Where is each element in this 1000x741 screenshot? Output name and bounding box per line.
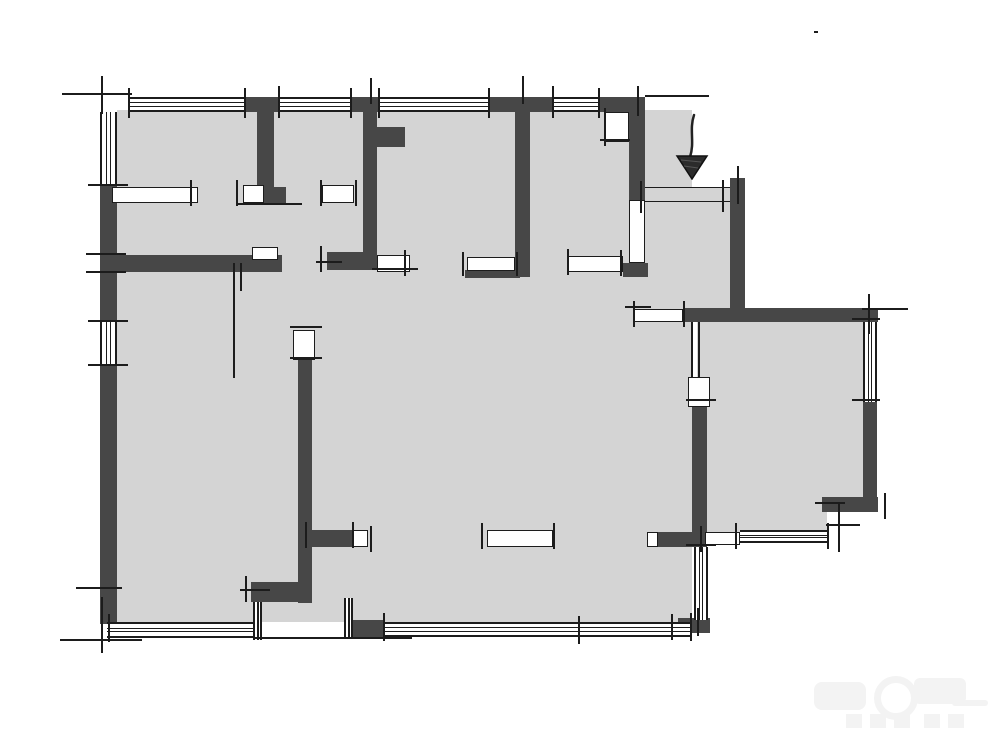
- sketch-tick-line: [827, 523, 829, 549]
- sketch-tick-line: [316, 261, 342, 263]
- wall-segment: [244, 97, 278, 112]
- sketch-tick-line: [190, 180, 192, 206]
- sketch-tick-line: [352, 522, 354, 548]
- sketch-tick-line: [240, 263, 242, 291]
- window-band: [344, 598, 353, 638]
- floor-area: [117, 110, 692, 622]
- door-opening: [322, 185, 354, 203]
- sketch-tick-line: [686, 399, 716, 401]
- entrance-arrow-icon: [668, 112, 712, 185]
- wall-segment: [629, 112, 645, 200]
- sketch-tick-line: [862, 308, 908, 310]
- sketch-tick-line: [691, 322, 693, 378]
- sketch-tick-line: [350, 88, 352, 118]
- sketch-tick-line: [852, 318, 880, 320]
- sketch-tick-line: [128, 88, 130, 118]
- sketch-tick-line: [700, 526, 702, 552]
- sketch-tick-line: [86, 271, 126, 273]
- sketch-tick-line: [671, 614, 673, 640]
- sketch-tick-line: [640, 181, 642, 213]
- door-opening: [567, 256, 623, 272]
- sketch-tick-line: [233, 263, 235, 378]
- wall-segment: [488, 97, 552, 112]
- floorplan-page: [0, 0, 1000, 741]
- entrance-threshold: [645, 187, 732, 202]
- sketch-tick-line: [481, 523, 483, 549]
- sketch-tick-line: [488, 88, 490, 118]
- wall-segment: [350, 97, 378, 112]
- watermark-blob: [846, 714, 862, 728]
- sketch-tick-line: [62, 93, 132, 95]
- window-band: [380, 97, 488, 112]
- sketch-tick-line: [88, 364, 128, 366]
- sketch-tick-line: [722, 180, 724, 212]
- sketch-tick-line: [88, 320, 128, 322]
- sketch-tick-line: [516, 252, 518, 276]
- sketch-tick-line: [553, 523, 555, 549]
- sketch-tick-line: [240, 589, 270, 591]
- sketch-tick-line: [598, 88, 600, 118]
- wall-segment: [251, 582, 312, 602]
- floorplan-canvas: [0, 0, 1000, 741]
- sketch-tick-line: [884, 493, 886, 519]
- door-opening: [633, 309, 683, 322]
- window-band: [253, 602, 262, 640]
- sketch-tick-line: [88, 184, 128, 186]
- sketch-tick-line: [737, 166, 739, 204]
- wall-segment: [100, 366, 117, 602]
- sketch-tick-line: [838, 504, 840, 552]
- sketch-tick-line: [620, 250, 622, 276]
- sketch-tick-line: [290, 357, 322, 359]
- door-opening: [487, 530, 553, 547]
- window-band: [128, 97, 244, 112]
- door-opening: [605, 112, 629, 142]
- window-band: [278, 97, 350, 112]
- sketch-tick-line: [578, 616, 580, 644]
- window-band: [552, 97, 598, 112]
- sketch-tick-line: [690, 613, 692, 641]
- sketch-tick-line: [320, 180, 322, 206]
- door-opening: [647, 532, 658, 547]
- wall-segment: [863, 400, 877, 512]
- sketch-tick-line: [278, 86, 280, 118]
- sketch-tick-line: [552, 86, 554, 118]
- floor-area: [645, 187, 732, 322]
- door-opening: [293, 330, 315, 360]
- door-opening: [353, 530, 368, 547]
- window-band: [100, 322, 117, 366]
- sketch-tick-line: [604, 108, 606, 146]
- window-band: [740, 530, 827, 543]
- window-band: [107, 622, 257, 638]
- sketch-tick-line: [290, 326, 322, 328]
- sketch-tick-line: [868, 294, 870, 334]
- sketch-tick-line: [108, 614, 110, 642]
- sketch-tick-line: [683, 301, 685, 327]
- sketch-tick-line: [370, 78, 372, 104]
- watermark-blob: [894, 714, 910, 728]
- door-opening: [467, 257, 515, 271]
- wall-segment: [312, 530, 353, 547]
- wall-segment: [353, 620, 383, 637]
- sketch-tick-line: [238, 203, 302, 205]
- door-opening: [629, 200, 645, 263]
- watermark-blob: [952, 700, 988, 706]
- window-band: [383, 622, 690, 637]
- sketch-tick-line: [852, 399, 880, 401]
- door-opening: [243, 185, 264, 203]
- sketch-tick-line: [826, 524, 860, 526]
- door-opening: [252, 247, 278, 260]
- door-opening: [688, 377, 710, 407]
- sketch-tick-line: [101, 76, 103, 114]
- sketch-tick-line: [372, 268, 418, 270]
- sketch-tick-line: [101, 597, 103, 653]
- wall-segment: [298, 360, 312, 603]
- watermark-blob: [814, 682, 866, 710]
- wall-segment: [683, 308, 878, 322]
- sketch-tick-line: [378, 88, 380, 118]
- watermark-blob: [948, 714, 964, 728]
- sketch-tick-line: [815, 502, 845, 504]
- wall-segment: [465, 270, 520, 278]
- watermark: [812, 670, 992, 734]
- sketch-tick-line: [698, 322, 700, 378]
- sketch-tick-line: [637, 86, 639, 116]
- sketch-tick-line: [567, 249, 569, 275]
- sketch-tick-line: [355, 180, 357, 206]
- sketch-tick-line: [814, 31, 818, 33]
- wall-segment: [363, 112, 377, 270]
- floor-area: [697, 430, 827, 532]
- sketch-tick-line: [244, 88, 246, 118]
- wall-segment: [822, 497, 878, 512]
- watermark-blob: [924, 714, 940, 728]
- sketch-tick-line: [686, 544, 716, 546]
- wall-segment: [377, 127, 405, 147]
- sketch-tick-line: [697, 608, 699, 636]
- sketch-tick-line: [633, 301, 635, 327]
- sketch-tick-line: [320, 246, 322, 272]
- sketch-tick-line: [305, 522, 307, 548]
- wall-segment: [257, 112, 274, 188]
- sketch-tick-line: [253, 637, 357, 639]
- watermark-blob: [870, 714, 886, 728]
- wall-segment: [264, 187, 286, 204]
- sketch-tick-line: [625, 306, 651, 308]
- sketch-tick-line: [86, 253, 126, 255]
- sketch-tick-line: [404, 250, 406, 276]
- sketch-tick-line: [76, 587, 122, 589]
- window-band: [863, 322, 877, 402]
- door-opening: [112, 187, 198, 203]
- sketch-tick-line: [370, 526, 372, 552]
- sketch-tick-line: [522, 76, 524, 104]
- sketch-tick-line: [735, 523, 737, 549]
- wall-segment: [623, 263, 648, 277]
- window-band: [100, 112, 117, 185]
- sketch-tick-line: [645, 95, 709, 97]
- sketch-tick-line: [462, 252, 464, 276]
